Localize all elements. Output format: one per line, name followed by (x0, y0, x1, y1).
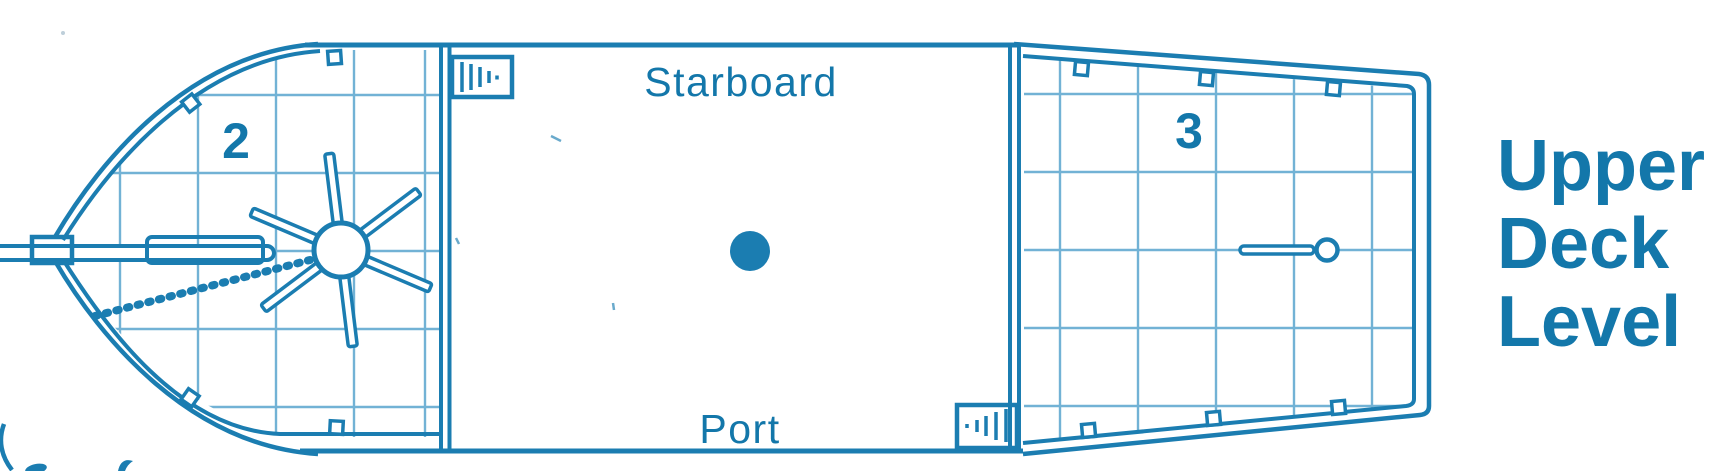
forward-bulkhead (441, 44, 450, 452)
deck-cleat (330, 421, 344, 435)
adjacent-drawing-fragment (24, 462, 48, 471)
deck-level-title: Upper Deck Level (1497, 126, 1705, 362)
label-port: Port (699, 406, 780, 452)
bowsprit-spar (0, 246, 274, 260)
label-bow-compartment: 2 (222, 113, 250, 169)
capstan-bar (325, 153, 343, 230)
mast-position-dot (730, 231, 770, 271)
label-stern-compartment: 3 (1175, 103, 1203, 159)
stern-section: 3 (1010, 44, 1429, 454)
deck-plan-scan: 2 Starboard Port (0, 0, 1729, 471)
adjacent-drawing-fragment (1, 424, 12, 470)
paper-speck (551, 136, 561, 141)
tiller-hub (1317, 240, 1338, 261)
label-starboard: Starboard (644, 59, 838, 105)
deck-title-line-3: Level (1497, 282, 1681, 362)
companionway-ladder-forward (452, 57, 512, 97)
aft-bulkhead (1010, 44, 1019, 453)
paper-speck (613, 303, 614, 310)
adjacent-drawing-fragment (118, 460, 133, 471)
paper-speck (456, 238, 459, 244)
bow-section: 2 (0, 44, 1023, 454)
deck-cleat (328, 51, 342, 65)
bowsprit (0, 237, 274, 263)
midship-section: Starboard Port (441, 44, 1017, 452)
deck-plan-drawing: 2 Starboard Port (0, 0, 1729, 471)
deck-cleat (1074, 61, 1088, 75)
deck-title-line-2: Deck (1497, 204, 1670, 284)
deck-title-line-1: Upper (1497, 126, 1705, 206)
paper-speck (61, 31, 65, 35)
anchor-chain (95, 260, 310, 316)
deck-cleat (1326, 81, 1340, 95)
deck-grating-grid-stern (1020, 50, 1428, 452)
tiller (1240, 240, 1338, 261)
deck-cleat (1331, 400, 1345, 414)
deck-cleat (1199, 71, 1213, 85)
deck-cleat (1081, 423, 1095, 437)
tiller-arm (1240, 246, 1314, 254)
adjacent-drawing-fragments (1, 424, 133, 471)
capstan-head (314, 223, 368, 277)
capstan-bar (359, 254, 432, 292)
deck-cleat (1206, 411, 1220, 425)
